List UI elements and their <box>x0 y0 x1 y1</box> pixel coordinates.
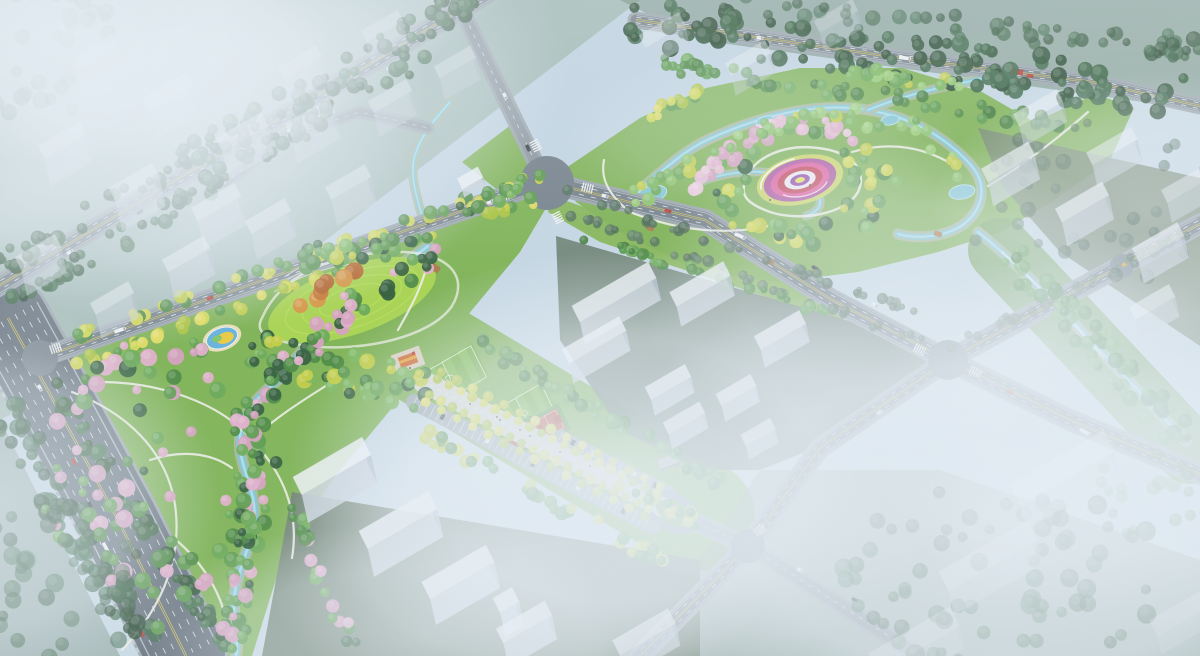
fog-layer <box>0 0 1200 656</box>
masterplan-scene <box>0 0 1200 656</box>
aerial-masterplan-rendering <box>0 0 1200 656</box>
atmosphere-veil <box>0 0 1200 656</box>
